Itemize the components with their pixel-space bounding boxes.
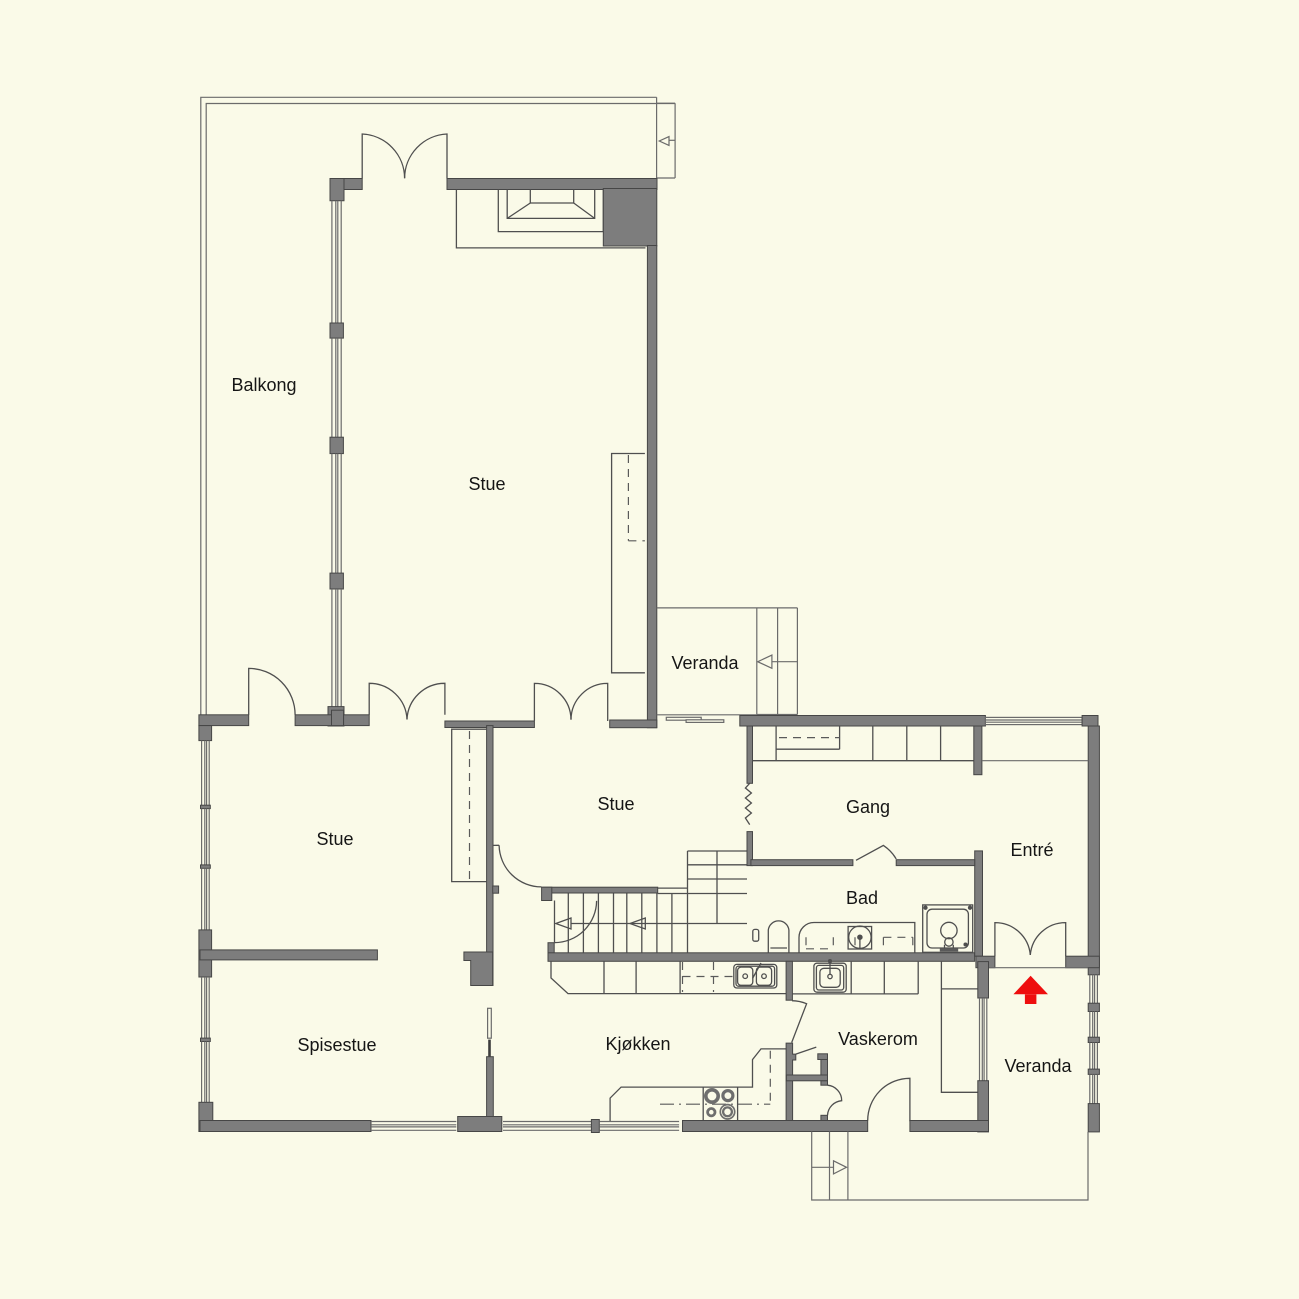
svg-text:Spisestue: Spisestue [297, 1035, 376, 1055]
svg-text:Veranda: Veranda [671, 653, 739, 673]
svg-text:Veranda: Veranda [1004, 1056, 1072, 1076]
svg-text:Stue: Stue [316, 829, 353, 849]
svg-text:Gang: Gang [846, 797, 890, 817]
svg-text:Stue: Stue [597, 794, 634, 814]
svg-text:Entré: Entré [1010, 840, 1053, 860]
svg-text:Bad: Bad [846, 888, 878, 908]
svg-text:Stue: Stue [468, 474, 505, 494]
svg-text:Vaskerom: Vaskerom [838, 1029, 918, 1049]
svg-text:Balkong: Balkong [231, 375, 296, 395]
svg-text:Kjøkken: Kjøkken [605, 1034, 670, 1054]
